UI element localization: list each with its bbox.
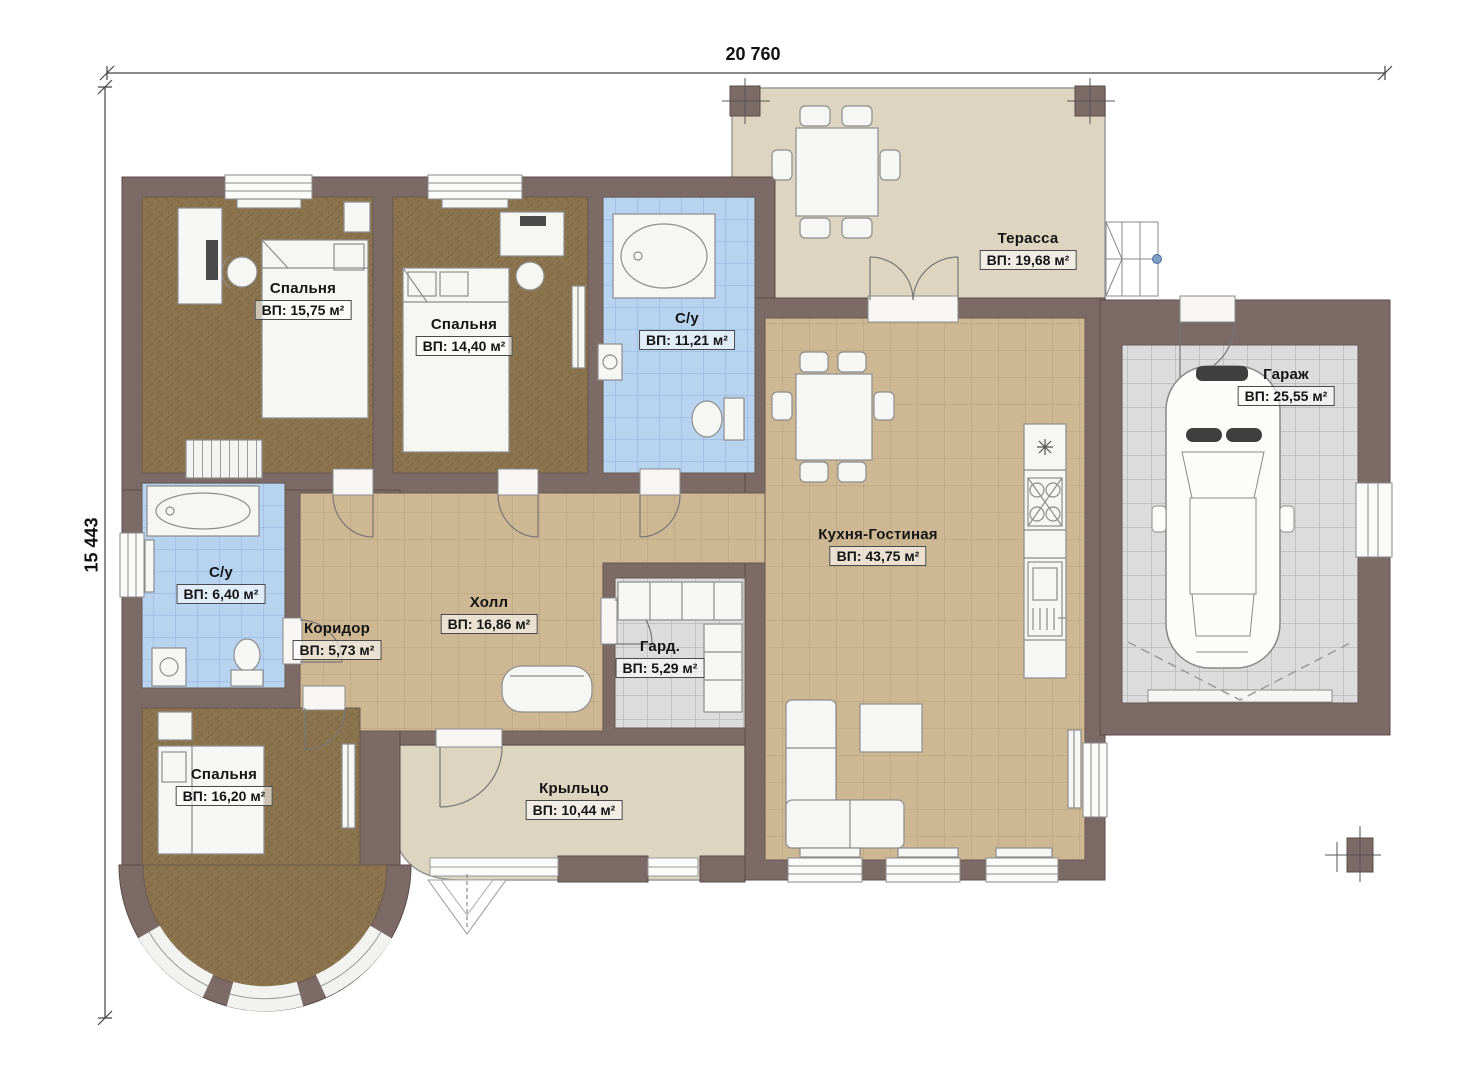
room-name: Терасса — [980, 230, 1077, 247]
room-label-bedroom-1: Спальня ВП: 15,75 м² — [255, 280, 352, 320]
room-name: Гард. — [616, 638, 705, 655]
room-name: Кухня-Гостиная — [818, 526, 937, 543]
room-label-kitchen-living: Кухня-Гостиная ВП: 43,75 м² — [818, 526, 937, 566]
room-label-bedroom-3: Спальня ВП: 16,20 м² — [176, 766, 273, 806]
room-area: ВП: 5,73 м² — [293, 640, 382, 660]
room-area: ВП: 25,55 м² — [1238, 386, 1335, 406]
room-label-wardrobe: Гард. ВП: 5,29 м² — [616, 638, 705, 678]
dimension-height-label: 15 443 — [82, 517, 103, 572]
labels-layer: 20 760 15 443 Спальня ВП: 15,75 м² Спаль… — [0, 0, 1473, 1080]
room-name: Спальня — [416, 316, 513, 333]
room-name: Крыльцо — [526, 780, 623, 797]
room-name: С/у — [177, 564, 266, 581]
room-label-hall: Холл ВП: 16,86 м² — [441, 594, 538, 634]
room-area: ВП: 16,20 м² — [176, 786, 273, 806]
room-area: ВП: 6,40 м² — [177, 584, 266, 604]
room-label-garage: Гараж ВП: 25,55 м² — [1238, 366, 1335, 406]
room-area: ВП: 43,75 м² — [830, 546, 927, 566]
room-name: Спальня — [255, 280, 352, 297]
room-area: ВП: 16,86 м² — [441, 614, 538, 634]
room-area: ВП: 15,75 м² — [255, 300, 352, 320]
room-area: ВП: 14,40 м² — [416, 336, 513, 356]
room-name: Гараж — [1238, 366, 1335, 383]
room-label-bathroom-2: С/у ВП: 6,40 м² — [177, 564, 266, 604]
room-name: С/у — [639, 310, 735, 327]
room-label-bedroom-2: Спальня ВП: 14,40 м² — [416, 316, 513, 356]
dimension-width-label: 20 760 — [725, 44, 780, 65]
room-name: Коридор — [293, 620, 382, 637]
room-label-porch: Крыльцо ВП: 10,44 м² — [526, 780, 623, 820]
room-area: ВП: 11,21 м² — [639, 330, 735, 350]
room-label-bathroom-1: С/у ВП: 11,21 м² — [639, 310, 735, 350]
floor-plan: 20 760 15 443 Спальня ВП: 15,75 м² Спаль… — [0, 0, 1473, 1080]
room-name: Холл — [441, 594, 538, 611]
room-name: Спальня — [176, 766, 273, 783]
room-label-terrace: Терасса ВП: 19,68 м² — [980, 230, 1077, 270]
room-area: ВП: 5,29 м² — [616, 658, 705, 678]
room-label-corridor: Коридор ВП: 5,73 м² — [293, 620, 382, 660]
room-area: ВП: 19,68 м² — [980, 250, 1077, 270]
room-area: ВП: 10,44 м² — [526, 800, 623, 820]
